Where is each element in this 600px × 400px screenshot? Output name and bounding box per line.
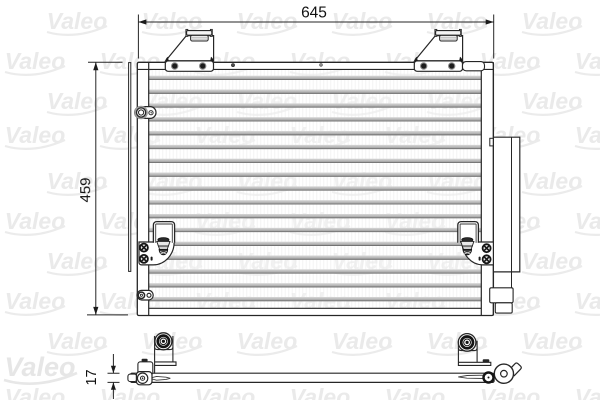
svg-text:459: 459 (77, 177, 94, 202)
svg-text:645: 645 (301, 5, 327, 22)
svg-text:17: 17 (84, 369, 100, 385)
